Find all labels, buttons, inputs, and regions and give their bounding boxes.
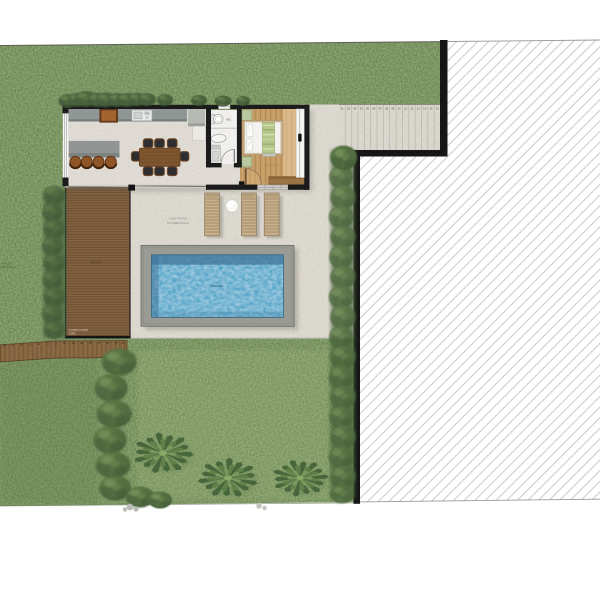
svg-text:VIDRO: VIDRO (69, 332, 77, 335)
svg-text:AMPLIACAO: AMPLIACAO (1, 265, 16, 269)
svg-text:PAVIMENTADA: PAVIMENTADA (167, 221, 189, 225)
svg-text:DECK: DECK (90, 261, 102, 265)
svg-text:A.EXTERNA: A.EXTERNA (169, 217, 187, 221)
svg-text:QUARTO: QUARTO (266, 163, 279, 167)
svg-text:WC: WC (226, 117, 231, 121)
svg-text:PISCINA: PISCINA (211, 284, 224, 288)
svg-text:FUTURA: FUTURA (1, 262, 12, 266)
